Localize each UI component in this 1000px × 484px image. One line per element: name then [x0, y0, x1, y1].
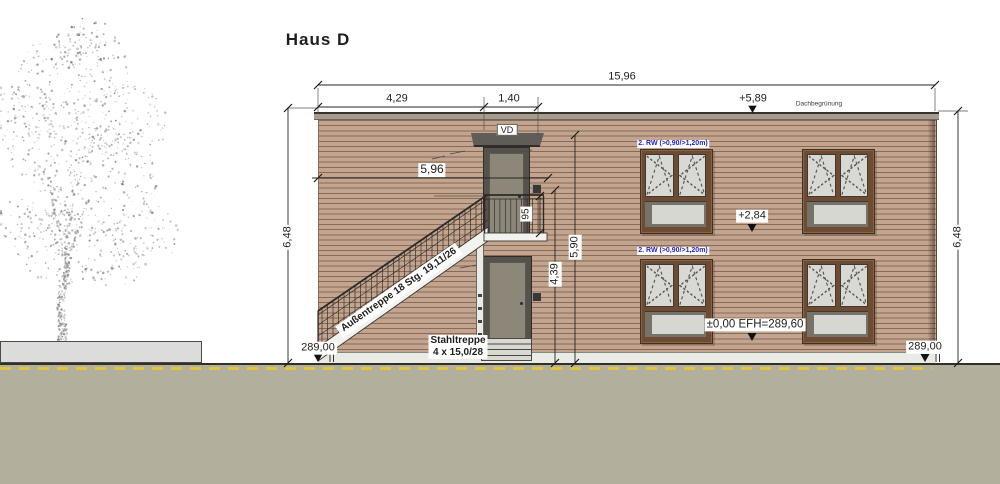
- window-lower-right: [802, 259, 875, 344]
- door-leaf: [489, 153, 524, 234]
- upper-entry-door: [483, 147, 530, 235]
- window-glazing: [807, 154, 868, 197]
- window-sash-right: [840, 264, 869, 307]
- window-sash-left: [807, 154, 836, 197]
- dim-entry-width: 5,96: [418, 163, 445, 177]
- note-steel-stair: Stahltreppe 4 x 15,0/28: [428, 335, 487, 359]
- opening-symbol-icon: [808, 155, 835, 196]
- dim-height-right: 6,48: [952, 224, 965, 249]
- tree-stipple: [0, 18, 179, 347]
- window-sash-right: [840, 154, 869, 197]
- level-roof: +5,89: [737, 93, 769, 106]
- opening-symbol-icon: [841, 155, 868, 196]
- note-rescue-window-upper: 2. RW (>0,90/>1,20m): [637, 140, 709, 148]
- page-title: Haus D: [284, 30, 353, 50]
- road-marking: [0, 367, 932, 370]
- door-leaf: [489, 262, 526, 339]
- spandrel-panel: [652, 315, 704, 334]
- window-sash-left: [645, 264, 674, 307]
- window-lower-left: [640, 259, 713, 344]
- wall-lamp-upper: [532, 184, 541, 193]
- ground: [0, 363, 1000, 484]
- window-sash-left: [807, 264, 836, 307]
- dim-total-width: 15,96: [606, 71, 638, 84]
- steel-entry-steps: [481, 338, 532, 361]
- steel-stair-line1: Stahltreppe: [430, 335, 485, 347]
- dim-height-left: 6,48: [282, 224, 295, 249]
- opening-symbol-icon: [646, 155, 673, 196]
- opening-symbol-icon: [646, 265, 673, 306]
- opening-symbol-icon: [679, 265, 706, 306]
- lower-entry-door: [483, 256, 532, 340]
- note-vd: VD: [497, 124, 518, 136]
- dim-landing-width: 1,40: [496, 93, 521, 106]
- opening-symbol-icon: [679, 155, 706, 196]
- window-spandrel: [807, 311, 868, 337]
- window-glazing: [807, 264, 868, 307]
- dim-upper-line: 5,90: [569, 234, 582, 259]
- level-ground-floor: ±0,00 EFH=289,60: [705, 318, 806, 331]
- window-sash-right: [678, 264, 707, 307]
- wall-lamp-lower: [532, 292, 541, 301]
- tree-sketch: [0, 0, 210, 370]
- window-glazing: [645, 154, 706, 197]
- window-spandrel: [807, 201, 868, 227]
- level-terrain-left: 289,00: [299, 342, 337, 355]
- dim-stair-run: 4,29: [384, 93, 409, 106]
- opening-symbol-icon: [841, 265, 868, 306]
- elevation-drawing: Haus D 15,96 4,29 1,40 5,96 6,48 6,48 95…: [0, 0, 1000, 484]
- window-sash-left: [645, 154, 674, 197]
- window-upper-right: [802, 149, 875, 234]
- spandrel-panel: [652, 205, 704, 224]
- level-upper-floor: +2,84: [736, 210, 768, 223]
- opening-symbol-icon: [808, 265, 835, 306]
- roof-parapet: [314, 112, 939, 120]
- window-sash-right: [678, 154, 707, 197]
- dim-railing-height: 95: [520, 206, 532, 221]
- note-rescue-window-lower: 2. RW (>0,90/>1,20m): [637, 247, 709, 255]
- note-roof-greening: Dachbegrünung: [794, 100, 844, 107]
- steel-stair-line2: 4 x 15,0/28: [430, 347, 485, 359]
- facade-corner-shadow: [928, 120, 935, 352]
- window-spandrel: [645, 311, 706, 337]
- level-terrain-right: 289,00: [906, 341, 944, 354]
- spandrel-panel: [814, 205, 866, 224]
- building-plinth: [318, 352, 935, 363]
- window-spandrel: [645, 201, 706, 227]
- window-upper-left: [640, 149, 713, 234]
- dim-door-line: 4,39: [549, 261, 562, 286]
- spandrel-panel: [814, 315, 866, 334]
- retaining-wall: [0, 341, 202, 363]
- window-glazing: [645, 264, 706, 307]
